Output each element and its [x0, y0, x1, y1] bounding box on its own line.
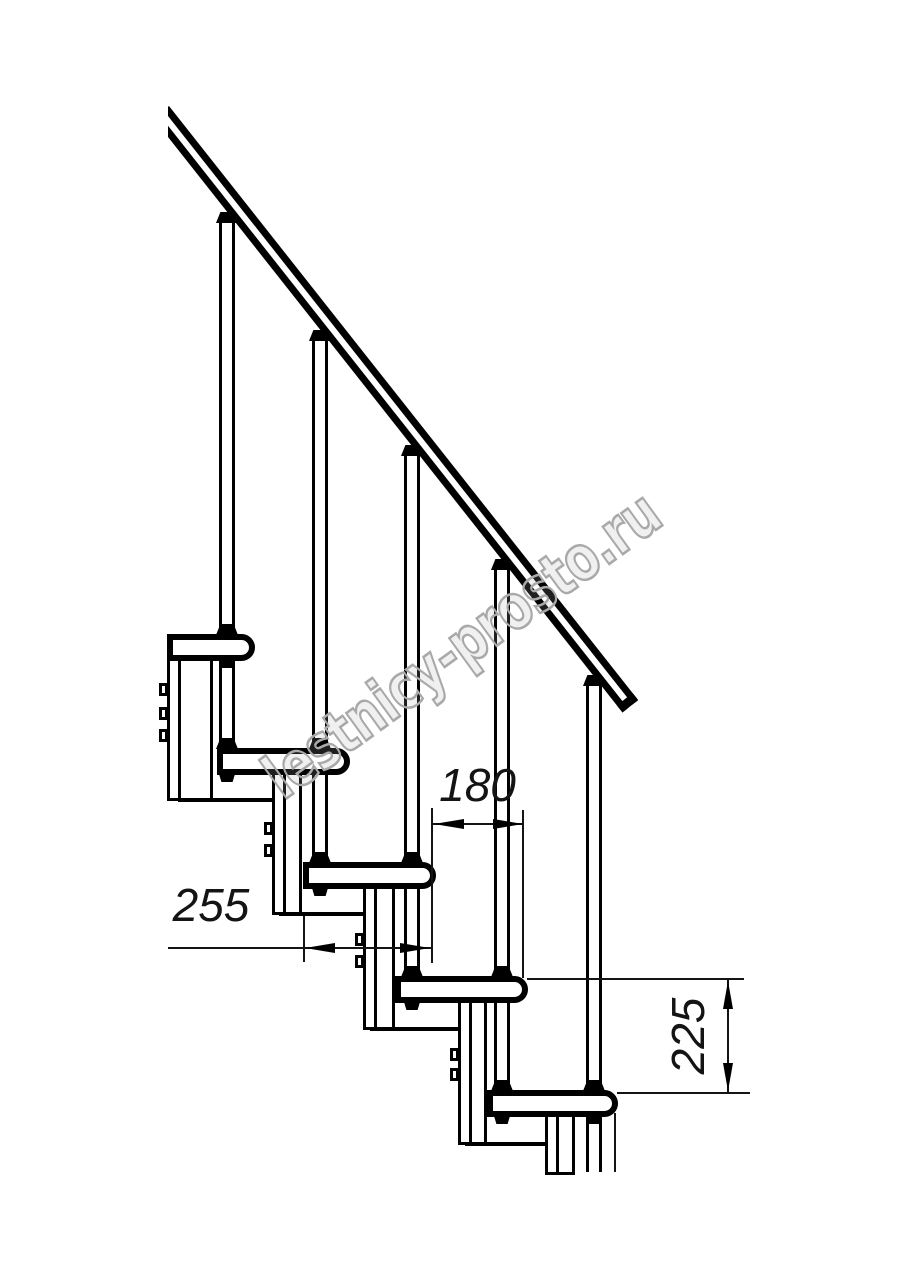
dimension-label-going: 180 — [432, 762, 523, 808]
support-module-flange-line — [556, 1113, 559, 1175]
module-bolt-tab — [450, 1048, 459, 1061]
module-plate — [370, 1027, 460, 1031]
dimension-line — [431, 808, 433, 963]
support-module — [545, 1113, 575, 1175]
staircase-drawing-canvas: 255 180 225 lestnicy-prosto.ru — [0, 0, 914, 1280]
stair-tread — [395, 976, 528, 1003]
dimension-arrow — [723, 1063, 733, 1091]
dimension-line — [617, 1092, 750, 1094]
dimension-arrow — [493, 819, 523, 829]
post-nut — [404, 1002, 420, 1010]
dimension-line — [527, 978, 744, 980]
dimension-line — [522, 810, 524, 978]
baluster-post — [404, 885, 420, 979]
module-bolt-tab — [355, 933, 364, 946]
baluster-post — [494, 999, 510, 1093]
support-module — [363, 885, 395, 1030]
module-bolt-tab — [159, 707, 168, 720]
module-plate — [465, 1142, 547, 1146]
dimension-line — [614, 1113, 616, 1172]
handrail — [168, 106, 638, 712]
post-nut — [494, 1116, 510, 1124]
module-bolt-tab — [264, 844, 273, 857]
dimension-label-tread-depth: 255 — [165, 882, 257, 928]
dimension-line — [168, 947, 433, 949]
post-nut — [312, 888, 328, 896]
post-nut — [586, 1116, 602, 1124]
support-module-flange-line — [374, 885, 377, 1030]
module-bolt-tab — [159, 729, 168, 742]
dimension-label-rise: 225 — [665, 990, 711, 1082]
stair-tread — [487, 1090, 618, 1117]
module-bolt-tab — [159, 683, 168, 696]
dimension-arrow — [305, 943, 335, 953]
dimension-line — [303, 916, 305, 962]
dimension-arrow — [723, 981, 733, 1009]
stair-tread — [303, 862, 436, 889]
support-module — [458, 999, 487, 1145]
post-nut — [219, 660, 235, 668]
support-module-flange-line — [469, 999, 472, 1145]
module-bolt-tab — [355, 955, 364, 968]
baluster-post — [586, 684, 602, 1093]
module-plate — [279, 912, 365, 916]
dimension-arrow — [434, 819, 464, 829]
dimension-arrow — [400, 943, 430, 953]
module-bolt-tab — [450, 1068, 459, 1081]
